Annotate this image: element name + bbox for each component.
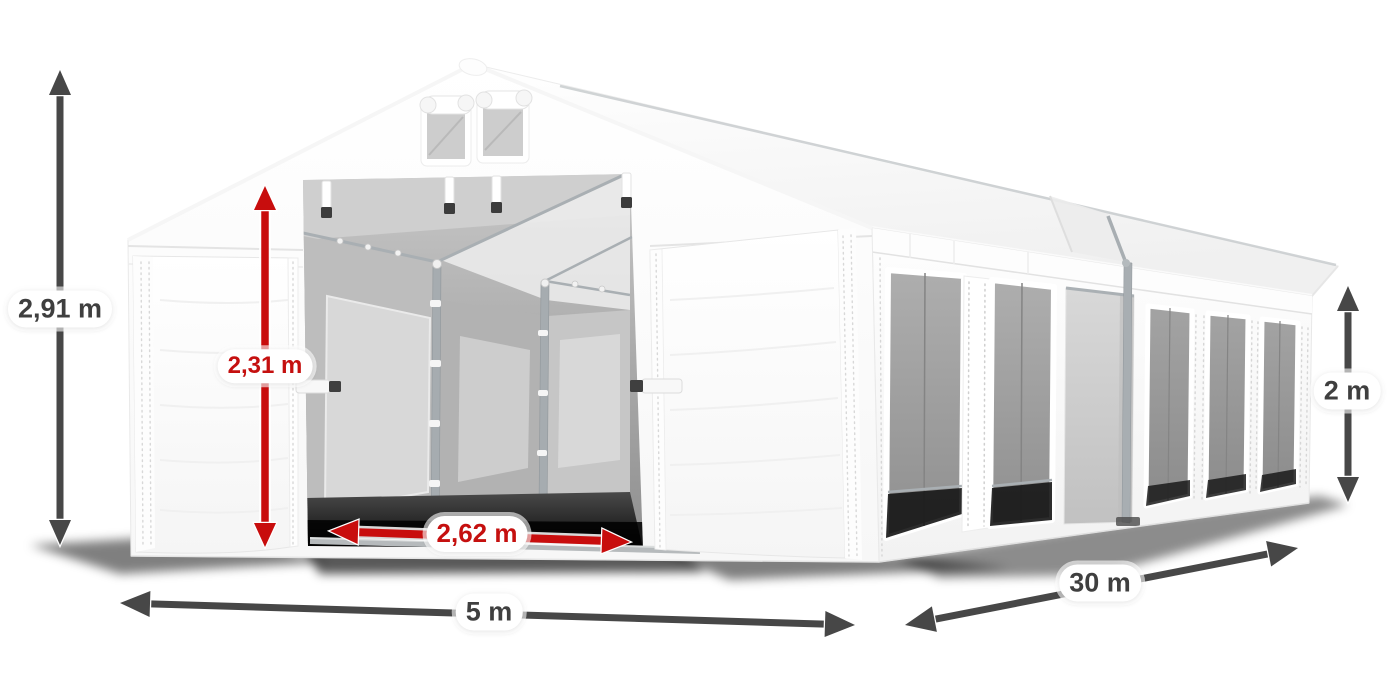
entrance-opening (303, 172, 643, 549)
product-dimension-diagram: 2,91 m 2,31 m 2,62 m 5 m 30 m 2 m (0, 0, 1400, 700)
door-width-label: 2,62 m (427, 516, 528, 552)
open-middle-section (1064, 259, 1140, 526)
door-strap-buckle (296, 380, 341, 393)
side-window-3 (1146, 306, 1192, 506)
width-label: 5 m (456, 593, 523, 630)
door-height-label: 2,31 m (218, 349, 313, 383)
side-window-2 (990, 280, 1054, 526)
side-window-4 (1206, 313, 1248, 498)
right-door-panel (630, 228, 862, 560)
length-label: 30 m (1059, 564, 1141, 601)
door-strap-buckle (630, 379, 682, 393)
tent-illustration (0, 0, 1400, 700)
side-height-label: 2 m (1314, 372, 1381, 409)
side-window-5 (1260, 319, 1298, 492)
side-window-1 (886, 270, 964, 538)
side-window-post (962, 276, 990, 532)
total-height-label: 2,91 m (8, 290, 112, 327)
